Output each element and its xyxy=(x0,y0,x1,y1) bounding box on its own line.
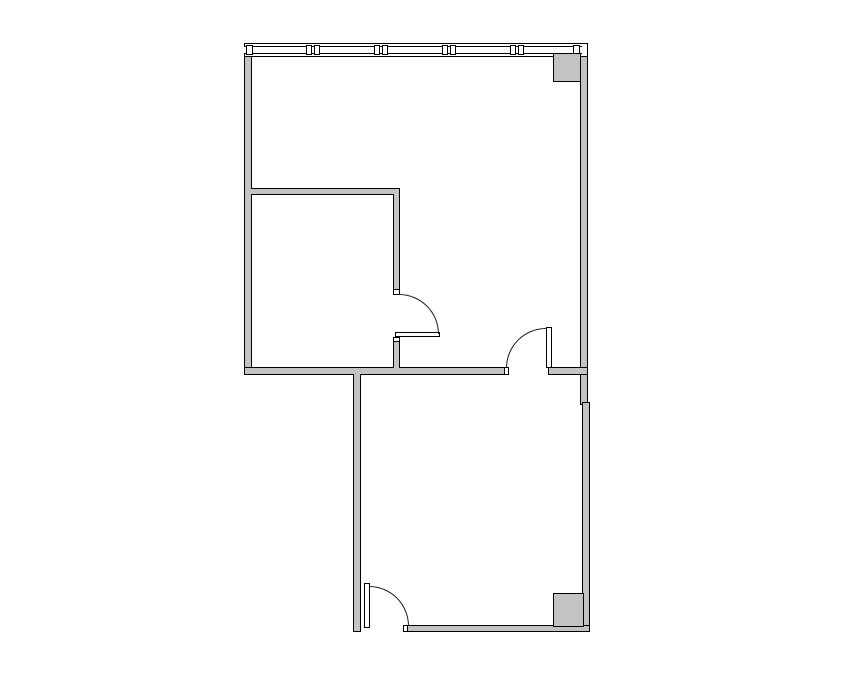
window-mullion xyxy=(306,45,312,55)
lower-room-left-wall xyxy=(353,374,361,632)
inner-door-south-cap xyxy=(393,337,400,342)
window-mullion xyxy=(442,45,448,55)
upper-room-door-leaf xyxy=(546,327,552,368)
upper-right-column xyxy=(553,53,581,82)
window-mullion xyxy=(510,45,516,55)
wall-joint xyxy=(246,189,253,194)
wall-joint xyxy=(246,368,253,374)
wall-joint xyxy=(581,368,587,374)
lower-room-door-swing-arc xyxy=(369,586,409,626)
lower-right-column xyxy=(553,593,584,627)
wall-joint xyxy=(354,373,360,376)
window-mullion xyxy=(450,45,456,55)
lower-door-east-cap xyxy=(403,625,408,632)
upper-door-west-cap xyxy=(504,367,509,375)
middle-wall-west xyxy=(244,367,505,375)
inner-room-right-wall xyxy=(393,194,400,295)
inner-room-top-wall xyxy=(251,188,400,195)
window-mullion xyxy=(382,45,388,55)
window-mullion xyxy=(518,45,524,55)
wall-joint xyxy=(394,366,399,369)
window-mullion xyxy=(374,45,380,55)
window-band-glass-line xyxy=(244,46,582,54)
top-right-wall xyxy=(580,44,588,405)
wall-joint xyxy=(394,193,399,196)
floorplan-canvas xyxy=(0,0,855,678)
window-mullion xyxy=(246,45,253,55)
inner-room-door-swing-arc xyxy=(399,294,439,334)
window-mullion xyxy=(314,45,320,55)
left-wall xyxy=(244,56,252,375)
upper-room-door-swing-arc xyxy=(506,328,546,368)
